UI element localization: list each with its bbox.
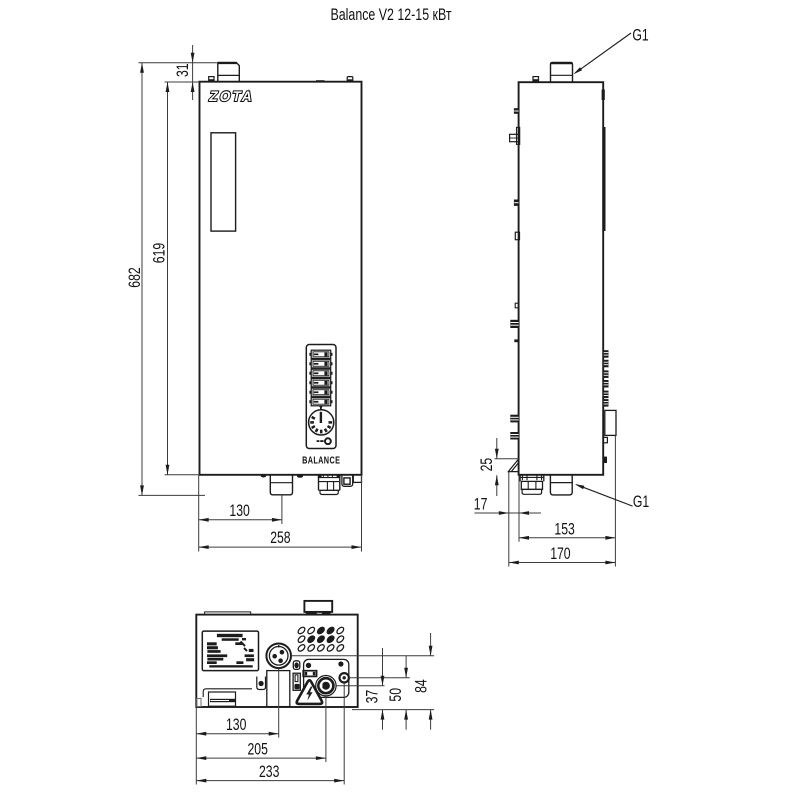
svg-text:ZOTA: ZOTA	[208, 88, 256, 104]
svg-text:619: 619	[151, 243, 169, 263]
svg-text:233: 233	[259, 763, 279, 781]
svg-text:258: 258	[270, 529, 290, 547]
svg-text:G1: G1	[633, 493, 649, 511]
svg-text:170: 170	[550, 545, 570, 563]
svg-text:17: 17	[474, 496, 488, 514]
svg-text:25: 25	[478, 458, 496, 472]
svg-text:31: 31	[174, 63, 192, 77]
svg-text:37: 37	[364, 690, 382, 704]
svg-text:130: 130	[229, 502, 249, 520]
svg-text:Balance V2 12-15 кВт: Balance V2 12-15 кВт	[330, 6, 451, 24]
svg-text:682: 682	[126, 267, 144, 287]
svg-text:BALANCE: BALANCE	[302, 455, 340, 466]
svg-text:G1: G1	[632, 27, 648, 45]
svg-text:84: 84	[413, 679, 431, 693]
svg-text:205: 205	[247, 741, 267, 759]
svg-text:153: 153	[554, 521, 574, 539]
svg-text:50: 50	[387, 688, 405, 702]
svg-text:130: 130	[226, 716, 246, 734]
